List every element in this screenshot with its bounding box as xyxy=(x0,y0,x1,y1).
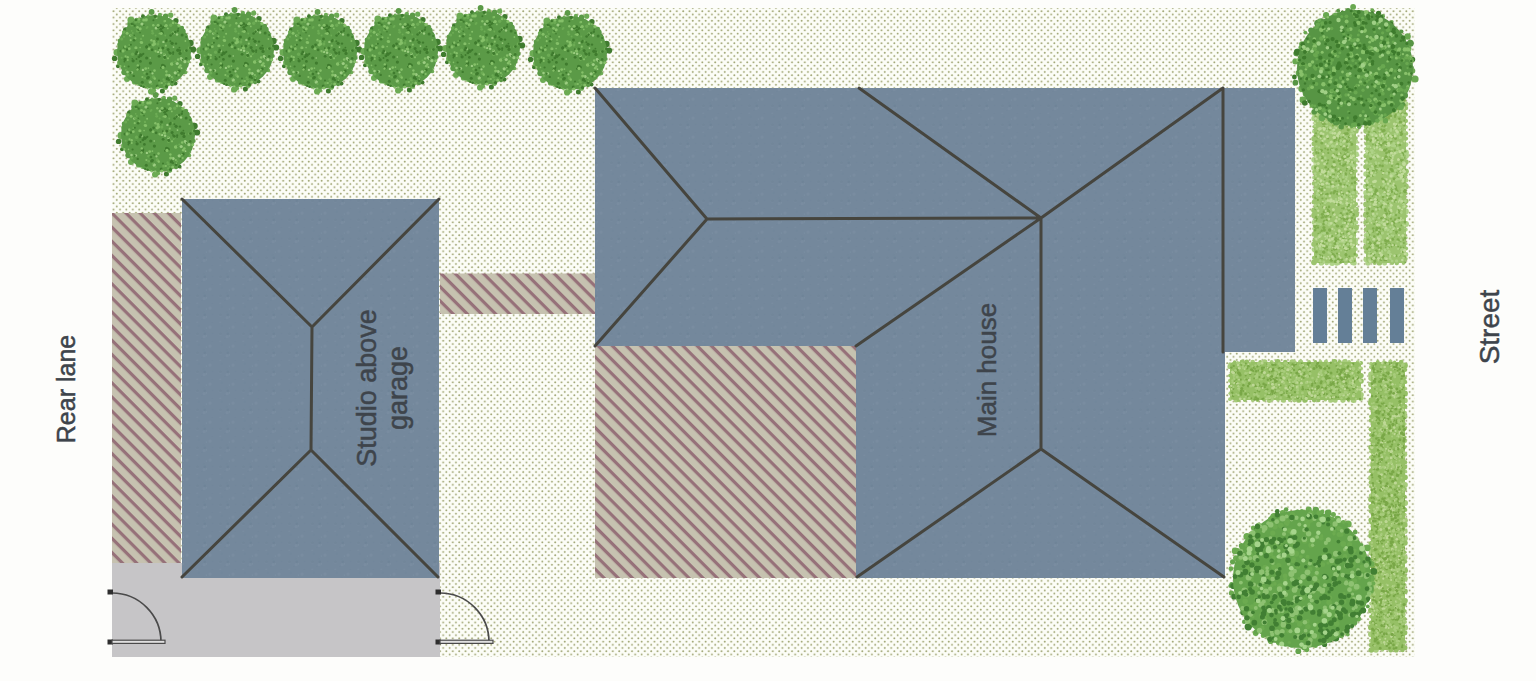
svg-text:Street: Street xyxy=(1474,289,1505,364)
svg-text:Main house: Main house xyxy=(972,303,1002,437)
svg-text:Rear lane: Rear lane xyxy=(52,335,80,443)
